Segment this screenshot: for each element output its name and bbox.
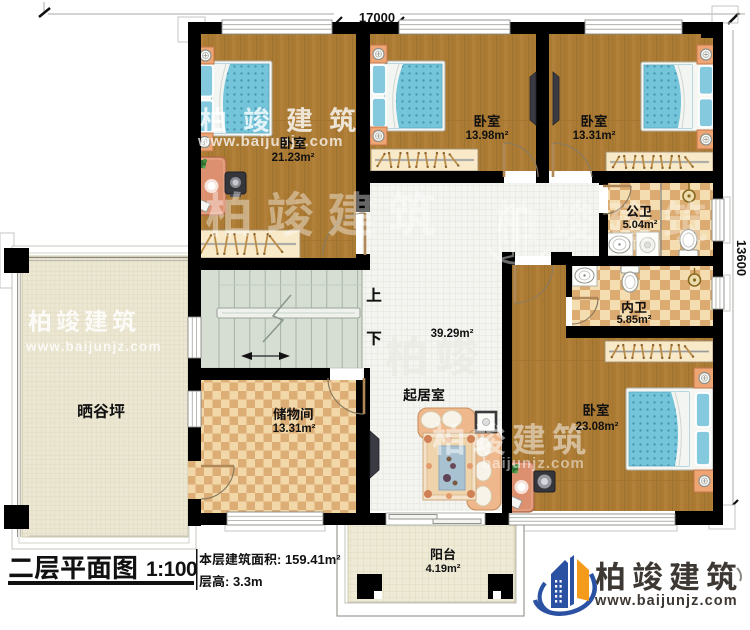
svg-text:www.baijunjz.com: www.baijunjz.com (25, 339, 162, 354)
svg-text:www.baijunjz.com: www.baijunjz.com (197, 133, 343, 150)
svg-text:: 3.3m: : 3.3m (225, 574, 263, 589)
svg-text:4.19m²: 4.19m² (426, 563, 461, 575)
svg-text:baijunjz.com: baijunjz.com (482, 455, 585, 472)
svg-text:21.23m²: 21.23m² (272, 152, 315, 164)
svg-text:www.baijunjz.com: www.baijunjz.com (594, 593, 738, 609)
svg-text:1:100: 1:100 (146, 558, 197, 581)
svg-text:23.08m²: 23.08m² (576, 421, 619, 433)
svg-text:5.04m²: 5.04m² (623, 219, 658, 231)
svg-text:39.29m²: 39.29m² (431, 328, 474, 340)
svg-text:13.98m²: 13.98m² (466, 130, 509, 142)
svg-text:5.85m²: 5.85m² (617, 314, 652, 326)
svg-text:: 159.41m²: : 159.41m² (277, 552, 341, 567)
svg-text:13.31m²: 13.31m² (573, 130, 616, 142)
svg-text:13.31m²: 13.31m² (273, 423, 316, 435)
svg-text:13600: 13600 (734, 240, 749, 276)
